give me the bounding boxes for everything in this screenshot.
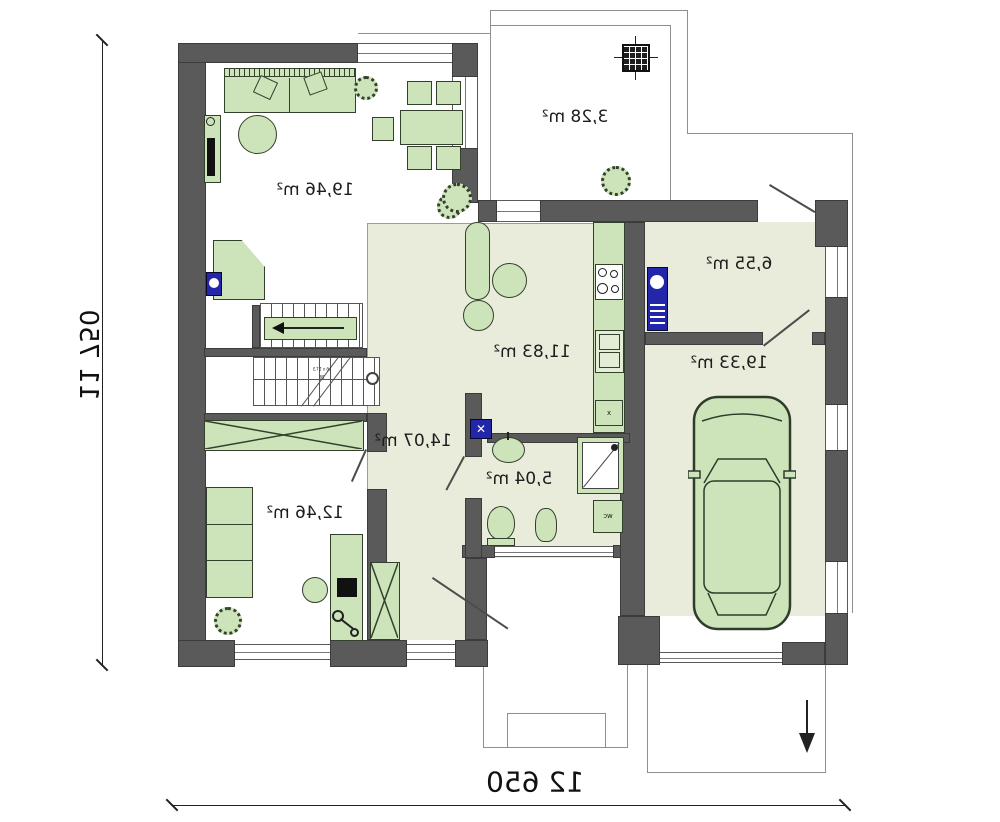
chair xyxy=(407,146,432,170)
wall-west xyxy=(178,43,206,667)
plan-line xyxy=(358,33,490,34)
sink-mark: x xyxy=(607,409,611,417)
wall-north-living xyxy=(178,43,358,63)
shrub xyxy=(442,183,472,213)
driveway-outline xyxy=(647,665,648,773)
wall-entry-recess xyxy=(465,558,487,640)
stove-door xyxy=(209,278,219,288)
tree xyxy=(601,166,631,196)
dimension-label-horizontal: 12 650 xyxy=(486,766,584,799)
stair-direction-line xyxy=(284,327,344,329)
tv-screen xyxy=(207,138,215,176)
fridge-inner xyxy=(599,352,620,368)
wall-alcove xyxy=(252,305,260,348)
wall-utility-garage xyxy=(812,332,825,345)
stool xyxy=(463,300,494,331)
floor-drain xyxy=(622,44,650,72)
dimension-line-horizontal xyxy=(172,805,845,806)
entry-steps-outline xyxy=(483,747,628,748)
room-label-bedroom: 12,46 m² xyxy=(266,503,343,523)
bed-line xyxy=(207,524,252,525)
room-label-garage: 19,33 m² xyxy=(690,353,767,373)
wall-garage-south-west xyxy=(618,616,660,665)
wall-living-porch xyxy=(452,43,478,77)
boiler-door xyxy=(650,275,664,289)
entry-steps-outline xyxy=(605,713,606,747)
room-label-hall: 14,07 m² xyxy=(374,431,451,451)
dimension-label-vertical: 11 750 xyxy=(73,310,103,401)
window-garage-east-1 xyxy=(825,405,848,450)
stair-centerline xyxy=(253,379,369,380)
bed xyxy=(206,487,253,598)
wall-stair-mid xyxy=(204,348,367,357)
cooktop-burner xyxy=(597,283,608,294)
bath-sink xyxy=(492,437,525,463)
room-label-utility: 6,55 m² xyxy=(706,254,773,274)
porch-outline xyxy=(490,25,491,201)
round-table xyxy=(492,263,527,298)
plan-line xyxy=(687,133,852,134)
chair xyxy=(436,81,461,105)
sofa-back xyxy=(224,68,356,77)
bedroom-door-leaf xyxy=(351,449,367,482)
window-garage-east-2 xyxy=(825,562,848,613)
entry-steps-outline xyxy=(507,713,605,714)
wall-north-wing xyxy=(540,200,758,222)
plan-line xyxy=(490,10,687,11)
toilet-tank xyxy=(487,538,515,546)
floor-plan: 16 x 17,5 28 xyxy=(0,0,1000,822)
plant xyxy=(214,607,242,635)
wall-east xyxy=(825,450,848,562)
wall-east-corner xyxy=(825,613,848,665)
toilet xyxy=(487,506,515,540)
room-label-living: 19,46 m² xyxy=(276,180,353,200)
ottoman xyxy=(238,115,277,154)
driveway-outline xyxy=(647,772,826,773)
plan-line xyxy=(852,133,853,613)
window-utility-east xyxy=(825,247,848,297)
bed-line xyxy=(207,560,252,561)
entry-steps-outline xyxy=(483,662,484,747)
stair-lower-flight xyxy=(253,357,380,406)
washing-machine: ✕ xyxy=(470,419,492,439)
wall-south xyxy=(455,640,488,667)
plant xyxy=(354,76,378,100)
car xyxy=(688,385,796,641)
window-bath-south xyxy=(495,546,613,557)
wall-north-corner xyxy=(815,200,848,247)
utility-floor xyxy=(645,222,825,332)
monitor xyxy=(337,578,357,597)
window-hall-south xyxy=(407,644,455,660)
chair xyxy=(372,117,394,141)
wall-east-corner-foot xyxy=(782,642,825,665)
wall-north-wing xyxy=(478,200,497,222)
cooktop-burner xyxy=(610,270,618,278)
stair-note: 28 xyxy=(319,375,324,380)
entry-steps-outline xyxy=(507,713,508,747)
wall-south xyxy=(178,640,235,667)
window-bedroom-south xyxy=(235,644,330,660)
driveway-arrow-line xyxy=(806,700,808,734)
wall-south xyxy=(330,640,407,667)
wall-utility-garage xyxy=(645,332,763,345)
cooktop-burner xyxy=(611,285,619,293)
boiler-vent xyxy=(650,300,665,326)
porch-outline xyxy=(490,25,670,26)
room-label-bathroom: 5,04 m² xyxy=(486,469,553,489)
garage-door xyxy=(660,652,782,663)
driveway-arrow-head xyxy=(799,733,815,753)
desk-chair xyxy=(302,577,328,603)
speaker-icon xyxy=(206,117,215,126)
porch-outline xyxy=(670,25,671,201)
wc-shaft-label: wc xyxy=(603,512,613,520)
stair-note: 16 x 17,5 xyxy=(313,367,332,372)
sofa-divider xyxy=(289,78,290,113)
kitchen-island xyxy=(465,222,490,300)
hall-wardrobe xyxy=(370,562,400,640)
chair xyxy=(407,81,432,105)
room-label-kitchen: 11,83 m² xyxy=(493,342,570,362)
entry-steps-outline xyxy=(627,662,628,747)
window-kitchen-porch xyxy=(497,200,540,222)
fridge-inner xyxy=(599,334,620,350)
window-living-north xyxy=(358,43,452,63)
bath-sink-tap xyxy=(507,432,509,440)
shower-head xyxy=(611,444,618,451)
dining-table xyxy=(400,110,463,145)
driveway-outline xyxy=(825,665,826,773)
bedroom-wardrobe xyxy=(204,420,364,451)
desk-lamp-base xyxy=(350,628,359,637)
plan-line xyxy=(687,10,688,134)
stair-direction-arrow xyxy=(272,322,284,334)
chair xyxy=(436,146,461,170)
bidet xyxy=(535,508,557,542)
wall-bath-west xyxy=(465,498,482,558)
stair-centerline-end xyxy=(366,372,379,385)
utility-entry-door-leaf xyxy=(769,184,815,213)
room-label-porch: 3,28 m² xyxy=(542,107,609,127)
cooktop-burner xyxy=(598,268,607,277)
wall-east xyxy=(825,297,848,405)
